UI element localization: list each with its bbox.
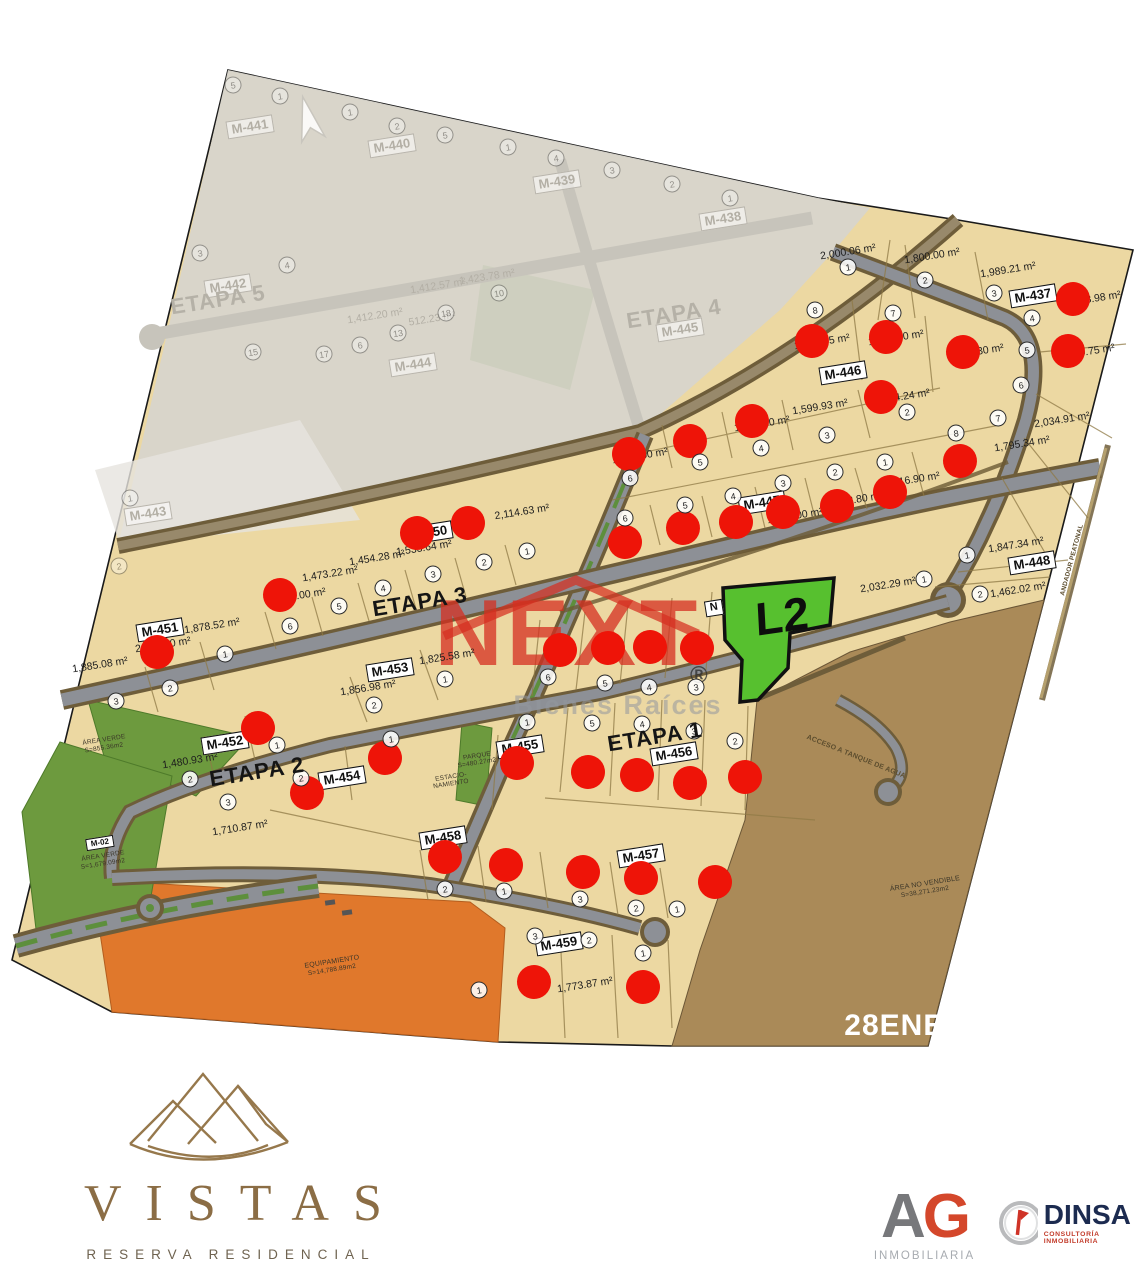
ag-letter-g: G — [923, 1182, 968, 1251]
ag-subtitle: INMOBILIARIA — [852, 1250, 997, 1262]
dinsa-badge-icon — [998, 1200, 1038, 1246]
master-plan-page: NEXT ® Bienes Raíces 2,000.06 m²1,800.00… — [0, 0, 1141, 1280]
vistas-name: VISTAS — [60, 1174, 395, 1233]
highlight-lot-label: L2 — [754, 585, 810, 647]
ag-letter-a: A — [881, 1182, 923, 1251]
vistas-logo: VISTAS RESERVA RESIDENCIAL — [60, 1046, 395, 1262]
site-plan-map — [0, 0, 1141, 1060]
vistas-mountains-icon — [118, 1046, 338, 1168]
dinsa-name: DINSA — [1044, 1201, 1141, 1229]
dinsa-logo: DINSA CONSULTORÍA INMOBILIARIA — [998, 1200, 1141, 1246]
ag-monogram: AG — [852, 1186, 997, 1248]
dinsa-subtitle: CONSULTORÍA INMOBILIARIA — [1044, 1231, 1141, 1245]
ag-logo: AG INMOBILIARIA — [852, 1186, 997, 1262]
date-stamp: 28ENE26 — [844, 1009, 979, 1043]
vistas-tagline: RESERVA RESIDENCIAL — [60, 1247, 395, 1262]
